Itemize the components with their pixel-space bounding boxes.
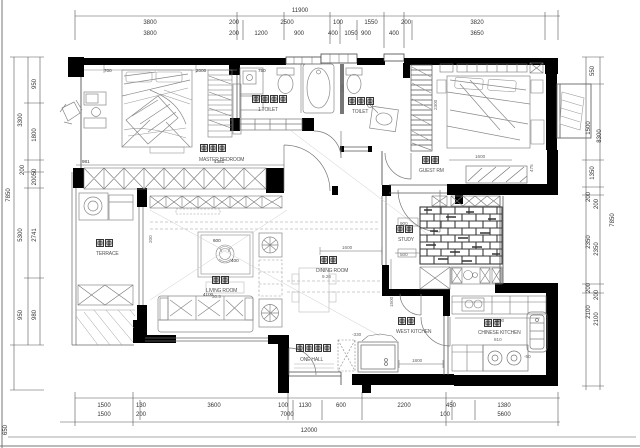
svg-text:200: 200 bbox=[586, 191, 592, 202]
svg-text:3800: 3800 bbox=[143, 31, 157, 37]
svg-text:3600: 3600 bbox=[207, 403, 221, 409]
svg-text:700: 700 bbox=[104, 68, 112, 73]
svg-text:1800: 1800 bbox=[32, 128, 38, 142]
svg-text:650: 650 bbox=[3, 424, 9, 435]
svg-text:11900: 11900 bbox=[292, 8, 309, 14]
svg-text:1600: 1600 bbox=[475, 154, 486, 159]
svg-text:-330: -330 bbox=[352, 332, 362, 337]
svg-text:1600: 1600 bbox=[342, 245, 353, 250]
svg-text:7850: 7850 bbox=[610, 213, 616, 227]
svg-text:500: 500 bbox=[400, 252, 408, 257]
svg-text:200: 200 bbox=[20, 164, 26, 175]
svg-text:900: 900 bbox=[400, 221, 408, 226]
svg-text:5600: 5600 bbox=[497, 412, 511, 418]
svg-text:100: 100 bbox=[278, 403, 289, 409]
svg-text:2200: 2200 bbox=[397, 403, 411, 409]
svg-text:2350: 2350 bbox=[586, 235, 592, 249]
svg-text:-50: -50 bbox=[524, 354, 531, 359]
svg-text:100: 100 bbox=[333, 20, 344, 26]
svg-text:1300: 1300 bbox=[494, 318, 505, 323]
svg-text:900: 900 bbox=[361, 31, 372, 37]
svg-text:450: 450 bbox=[446, 403, 457, 409]
svg-text:7850: 7850 bbox=[6, 188, 12, 202]
svg-text:MASTER BEDROOM: MASTER BEDROOM bbox=[199, 157, 244, 163]
svg-text:20050: 20050 bbox=[32, 168, 38, 185]
svg-text:900: 900 bbox=[294, 31, 305, 37]
svg-text:12000: 12000 bbox=[301, 428, 318, 434]
svg-text:200: 200 bbox=[136, 412, 147, 418]
svg-text:981: 981 bbox=[82, 159, 90, 164]
svg-text:2500: 2500 bbox=[280, 20, 294, 26]
svg-text:200: 200 bbox=[148, 235, 153, 243]
svg-text:TOILET: TOILET bbox=[352, 109, 368, 115]
svg-text:1800: 1800 bbox=[412, 358, 423, 363]
svg-text:100: 100 bbox=[440, 412, 451, 418]
svg-text:2300: 2300 bbox=[433, 99, 438, 110]
svg-text:400: 400 bbox=[328, 31, 339, 37]
svg-text:7000: 7000 bbox=[280, 412, 294, 418]
svg-text:1350: 1350 bbox=[590, 166, 596, 180]
svg-text:1200: 1200 bbox=[254, 31, 268, 37]
svg-text:TERRACE: TERRACE bbox=[96, 251, 119, 257]
svg-text:GUEST RM: GUEST RM bbox=[419, 168, 444, 174]
svg-text:WEST KITCHEN: WEST KITCHEN bbox=[396, 329, 432, 335]
svg-text:1 TOILET: 1 TOILET bbox=[258, 107, 278, 113]
svg-text:1380: 1380 bbox=[497, 403, 511, 409]
svg-text:STUDY: STUDY bbox=[398, 237, 415, 243]
svg-text:130: 130 bbox=[136, 403, 147, 409]
svg-text:1500: 1500 bbox=[97, 403, 111, 409]
svg-text:200: 200 bbox=[401, 20, 412, 26]
svg-text:8300: 8300 bbox=[597, 129, 603, 143]
svg-text:950: 950 bbox=[18, 309, 24, 320]
svg-text:810: 810 bbox=[494, 337, 502, 342]
svg-text:400: 400 bbox=[389, 31, 400, 37]
svg-text:1050: 1050 bbox=[344, 31, 358, 37]
svg-text:1500: 1500 bbox=[97, 412, 111, 418]
svg-text:950: 950 bbox=[32, 78, 38, 89]
svg-text:3650: 3650 bbox=[470, 31, 484, 37]
svg-text:5300: 5300 bbox=[18, 228, 24, 242]
svg-text:3820: 3820 bbox=[470, 20, 484, 26]
svg-text:ONE HALL: ONE HALL bbox=[300, 357, 324, 363]
svg-text:200: 200 bbox=[229, 31, 240, 37]
svg-text:LIVING ROOM: LIVING ROOM bbox=[206, 288, 237, 294]
svg-text:2100: 2100 bbox=[594, 312, 600, 326]
svg-text:200: 200 bbox=[229, 20, 240, 26]
svg-text:3800: 3800 bbox=[143, 20, 157, 26]
svg-text:200: 200 bbox=[594, 198, 600, 209]
svg-text:200: 200 bbox=[340, 84, 345, 92]
svg-text:CHINESE KITCHEN: CHINESE KITCHEN bbox=[478, 330, 521, 336]
svg-text:3300: 3300 bbox=[18, 113, 24, 127]
svg-text:750: 750 bbox=[258, 68, 266, 73]
svg-text:600: 600 bbox=[336, 403, 347, 409]
svg-text:2350: 2350 bbox=[594, 242, 600, 256]
svg-text:475: 475 bbox=[529, 164, 534, 172]
svg-text:1550: 1550 bbox=[364, 20, 378, 26]
svg-text:1500: 1500 bbox=[389, 296, 394, 307]
svg-text:400: 400 bbox=[231, 258, 239, 263]
svg-text:DINING ROOM: DINING ROOM bbox=[316, 268, 348, 274]
svg-text:200: 200 bbox=[586, 282, 592, 293]
svg-text:30.5: 30.5 bbox=[212, 294, 221, 299]
svg-text:550: 550 bbox=[590, 65, 596, 76]
svg-text:2741: 2741 bbox=[32, 228, 38, 242]
svg-text:600: 600 bbox=[213, 238, 221, 243]
svg-text:980: 980 bbox=[32, 309, 38, 320]
svg-text:9.26: 9.26 bbox=[322, 274, 331, 279]
svg-text:200: 200 bbox=[594, 289, 600, 300]
svg-text:1130: 1130 bbox=[299, 403, 313, 409]
svg-text:2000: 2000 bbox=[196, 68, 207, 73]
svg-text:2100: 2100 bbox=[586, 305, 592, 319]
